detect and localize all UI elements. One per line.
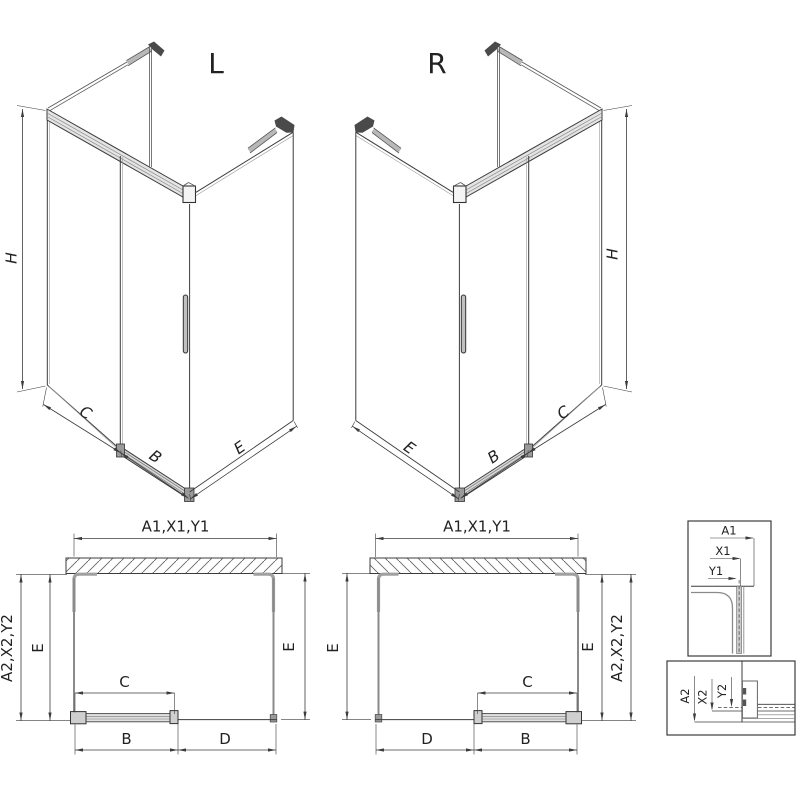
technical-drawing-page: A1 X1 Y1 A2 X2 Y2 L H C B E R H C <box>0 0 800 800</box>
dim-label-a1x1y1-plan-l: A1,X1,Y1 <box>142 518 210 536</box>
detail-label-a2: A2 <box>678 688 692 703</box>
detail-label-y2: Y2 <box>715 684 729 699</box>
dim-label-c-plan-l: C <box>119 673 129 691</box>
dim-label-e-r: E <box>400 438 418 458</box>
view-title-r: R <box>427 47 446 80</box>
dim-label-a2x2y2-plan-l: A2,X2,Y2 <box>0 614 16 682</box>
iso-view-l <box>17 42 298 502</box>
iso-view-r <box>351 42 632 502</box>
detail-label-y1: Y1 <box>708 564 723 578</box>
dim-label-e-right-plan-l: E <box>280 642 298 651</box>
detail-label-a1: A1 <box>721 524 736 538</box>
dim-label-b-r: B <box>484 446 503 467</box>
dim-label-c-plan-r: C <box>522 673 532 691</box>
plan-view-l <box>16 534 310 755</box>
detail-label-x1: X1 <box>715 544 730 558</box>
detail-label-x2: X2 <box>696 689 710 704</box>
dim-label-b-l: B <box>146 446 165 467</box>
dim-label-e-left-plan-l: E <box>29 643 47 652</box>
dim-label-h-r: H <box>604 248 622 260</box>
dim-label-a2x2y2-plan-r: A2,X2,Y2 <box>608 614 626 682</box>
dim-label-c-l: C <box>76 402 95 423</box>
dim-label-d-plan-l: D <box>219 730 231 748</box>
dim-label-e-right-plan-r: E <box>579 642 597 651</box>
shower-enclosure-drawing: A1 X1 Y1 A2 X2 Y2 L H C B E R H C <box>0 0 800 800</box>
dim-label-d-plan-r: D <box>421 730 433 748</box>
view-title-l: L <box>208 47 224 80</box>
dim-label-e-left-plan-r: E <box>324 643 342 652</box>
iso-l-labels: L H C B E <box>3 47 249 467</box>
dim-label-e-l: E <box>231 438 249 458</box>
dim-label-h-l: H <box>3 252 21 264</box>
iso-r-labels: R H C B E <box>400 47 621 467</box>
dim-label-b-plan-r: B <box>520 730 530 748</box>
dim-label-b-plan-l: B <box>121 730 131 748</box>
detail-bottom-profile: A2 X2 Y2 <box>667 661 795 735</box>
detail-top-profile: A1 X1 Y1 <box>688 521 771 656</box>
dim-label-a1x1y1-plan-r: A1,X1,Y1 <box>443 518 511 536</box>
